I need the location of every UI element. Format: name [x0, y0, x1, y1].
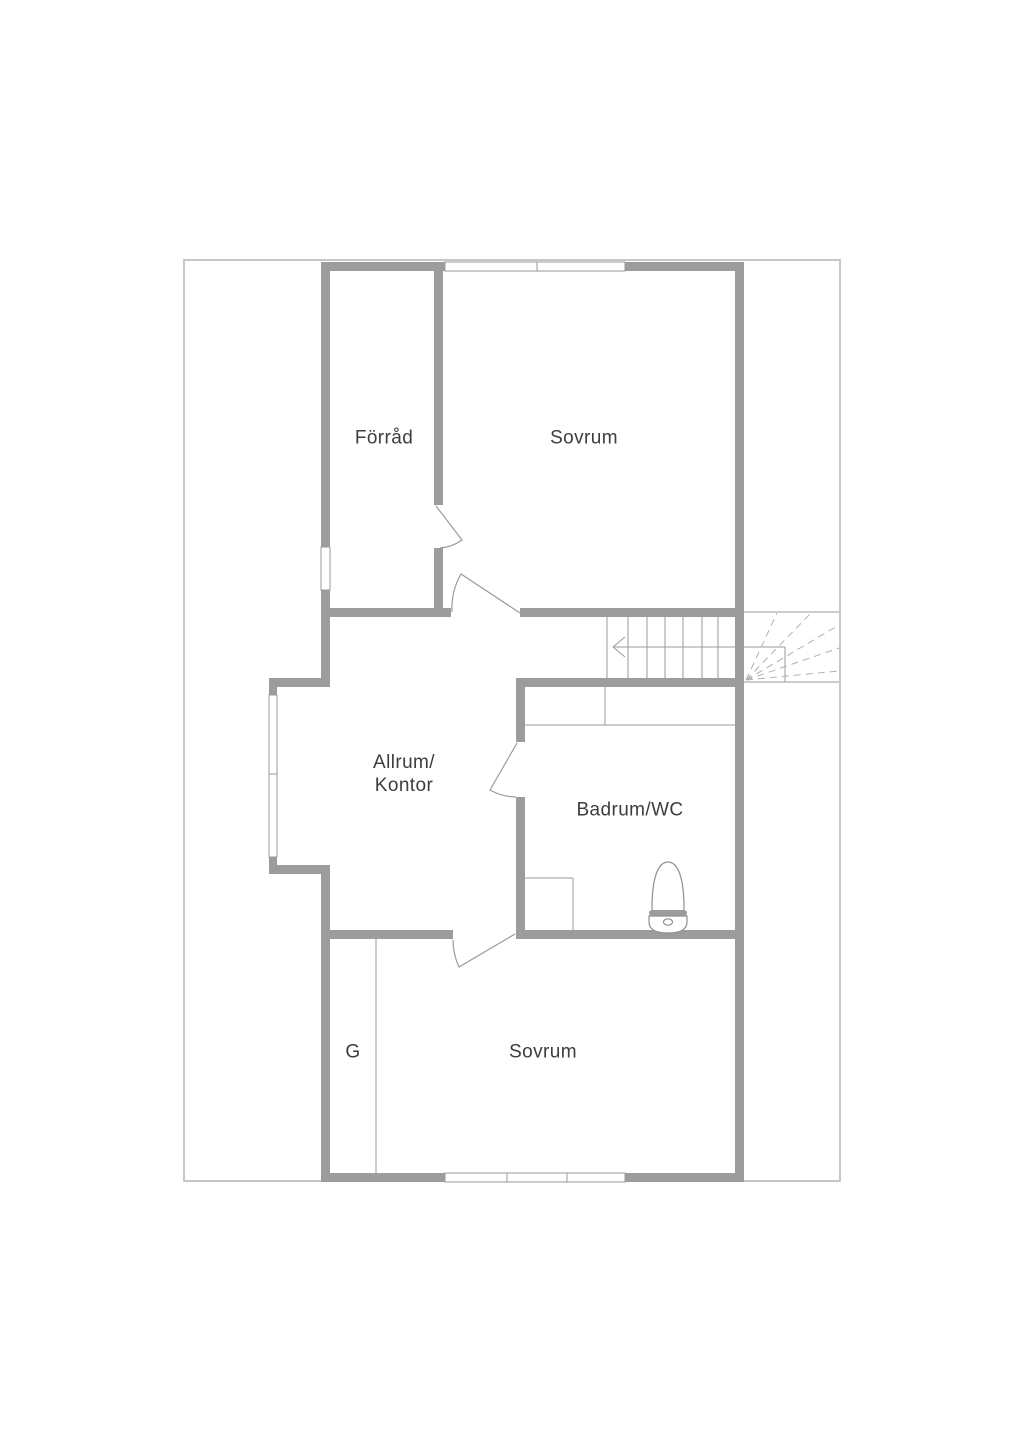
window-top: [445, 262, 625, 271]
room-label-sovrum-top: Sovrum: [550, 427, 618, 450]
room-label-forrad: Förråd: [355, 427, 413, 450]
wall-bottom-left: [321, 1173, 445, 1182]
wall-bay-south: [269, 865, 330, 874]
wall-bay-west-stub-bottom: [269, 857, 277, 866]
door-forrad: [436, 506, 462, 548]
shower-square: [524, 878, 573, 930]
wall-bay-west-stub-top: [269, 687, 277, 695]
wall-left-upper: [321, 262, 330, 547]
badrum-closet-strip: [524, 687, 735, 725]
wall-left-mid: [321, 590, 330, 678]
wall-bay-north: [269, 678, 330, 687]
floor-plan-drawing: [0, 0, 1024, 1449]
toilet-icon: [649, 862, 687, 933]
wall-top-right: [625, 262, 744, 271]
stair-winder: [744, 612, 839, 682]
wall-below-sovrum: [520, 608, 744, 617]
wall-badrum-west-lower: [516, 797, 525, 939]
window-bay-west: [269, 695, 277, 857]
doors: [436, 506, 520, 967]
wall-left-lower: [321, 930, 330, 1182]
wall-forrad-divider-upper: [434, 271, 443, 505]
room-label-sovrum-bottom: Sovrum: [509, 1041, 577, 1064]
staircase: [607, 612, 839, 682]
room-label-allrum-kontor: Allrum/ Kontor: [373, 751, 435, 797]
floor-plan-page: Förråd Sovrum Allrum/ Kontor Badrum/WC G…: [0, 0, 1024, 1449]
door-badrum: [490, 743, 517, 797]
wall-forrad-divider-lower: [434, 548, 443, 617]
wall-below-forrad: [321, 608, 451, 617]
room-label-garderob: G: [345, 1041, 360, 1064]
wall-badrum-west-upper: [516, 678, 525, 742]
wall-stairs-south: [517, 678, 744, 687]
wall-left-below-bay: [321, 865, 330, 939]
wall-bottom-right: [625, 1173, 744, 1182]
walls: [269, 262, 744, 1182]
wall-right: [735, 262, 744, 1182]
room-label-badrum-wc: Badrum/WC: [576, 799, 683, 822]
wall-badrum-south: [516, 930, 744, 939]
door-sovrum-bottom: [453, 934, 515, 967]
door-hall-sovrum: [452, 574, 520, 613]
wall-top-left: [321, 262, 445, 271]
wall-allrum-south: [321, 930, 453, 939]
stair-direction-arrow-icon: [613, 637, 735, 657]
window-forrad-west: [321, 547, 330, 590]
window-bottom: [445, 1173, 625, 1182]
